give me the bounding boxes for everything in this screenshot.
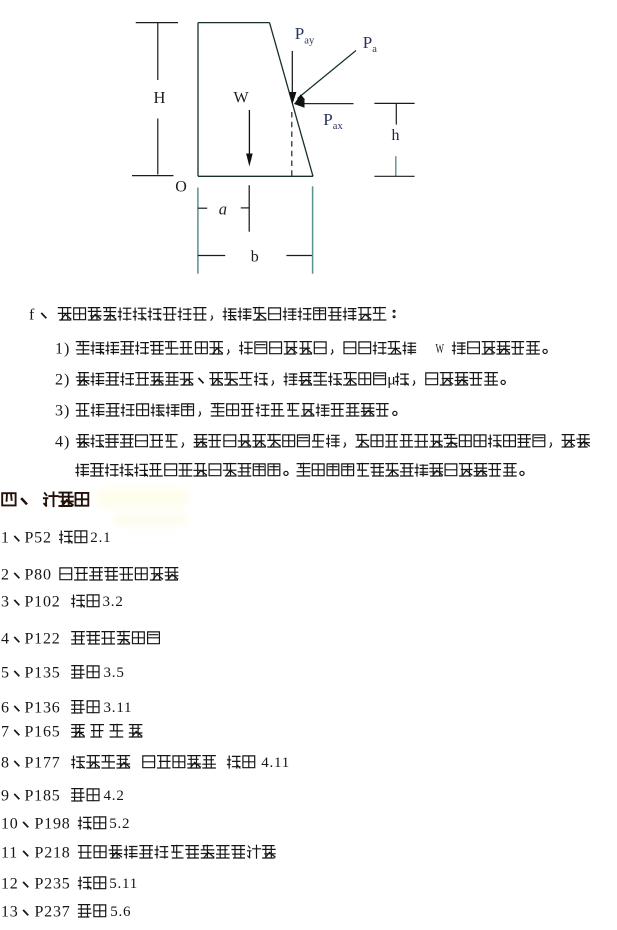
svg-text:P: P [323,110,332,129]
svg-text:μ: μ [387,371,397,388]
svg-text:P235: P235 [34,875,70,892]
svg-text:2: 2 [1,566,10,583]
svg-text:a: a [372,44,377,55]
svg-text:P165: P165 [24,723,60,740]
svg-text:a: a [219,200,227,219]
svg-text:W: W [436,340,445,355]
svg-text:f: f [29,306,35,323]
svg-text:P135: P135 [24,664,60,681]
svg-text:2.1: 2.1 [90,530,111,546]
svg-text:P177: P177 [24,754,60,771]
svg-text:O: O [175,179,187,196]
svg-text:3.11: 3.11 [103,699,132,715]
svg-text:W: W [234,90,250,107]
svg-text:2): 2) [55,371,70,388]
svg-text:12: 12 [1,875,19,892]
svg-text:P136: P136 [24,699,60,716]
svg-text:P: P [295,24,304,43]
svg-text:5.2: 5.2 [109,816,130,832]
svg-text:H: H [154,88,166,107]
svg-text:h: h [392,127,400,144]
svg-text:10: 10 [1,816,19,833]
svg-text:P102: P102 [24,593,60,610]
svg-text:5: 5 [1,664,10,681]
svg-text:4.11: 4.11 [261,755,290,771]
svg-text:P237: P237 [34,904,70,921]
svg-text:11: 11 [1,845,18,862]
svg-text:1): 1) [55,340,70,357]
svg-text:ax: ax [333,121,344,132]
svg-text:3): 3) [55,402,70,419]
svg-text:13: 13 [1,904,19,921]
svg-text:b: b [251,248,259,265]
svg-text:P218: P218 [34,845,70,862]
svg-text:4): 4) [55,433,70,450]
svg-text:8: 8 [1,754,10,771]
svg-text:ay: ay [304,35,315,46]
svg-text:P122: P122 [24,630,60,647]
svg-text:P185: P185 [24,787,60,804]
svg-text:3: 3 [1,593,10,610]
svg-text:6: 6 [1,699,10,716]
svg-text:P80: P80 [24,566,51,583]
svg-text:9: 9 [1,787,10,804]
svg-text:5.6: 5.6 [110,904,131,920]
svg-text:1: 1 [1,529,10,546]
svg-text:3.5: 3.5 [103,665,124,681]
svg-text:7: 7 [1,723,10,740]
svg-text:P52: P52 [24,529,51,546]
svg-text:P: P [363,33,372,52]
svg-text:5.11: 5.11 [109,875,138,891]
svg-text:3.2: 3.2 [102,594,123,610]
svg-text:4: 4 [1,630,10,647]
svg-text:4.2: 4.2 [103,787,124,803]
svg-text:P198: P198 [34,816,70,833]
